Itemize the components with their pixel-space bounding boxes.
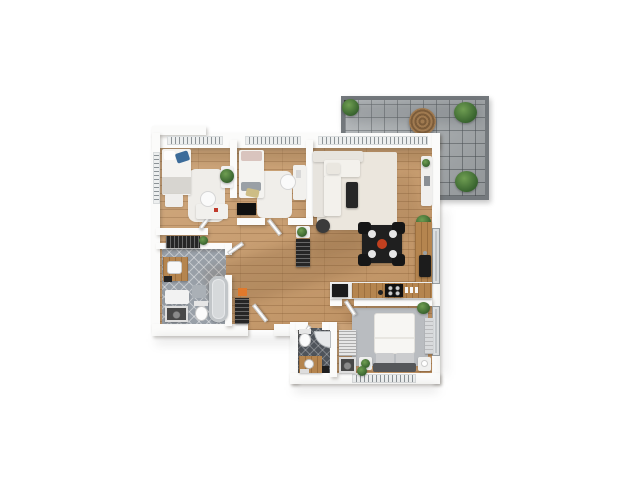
hall-shelf bbox=[235, 298, 249, 324]
wall-kitchen-bedroom-a bbox=[330, 298, 342, 306]
window-top-living bbox=[318, 136, 428, 145]
kitchen-sink bbox=[419, 255, 431, 277]
window-top-office2 bbox=[245, 136, 301, 145]
dining-plate-3 bbox=[368, 250, 376, 258]
sofa-cushion bbox=[327, 163, 340, 174]
kitchen-kettle bbox=[378, 290, 383, 295]
small-bath-item bbox=[322, 366, 329, 373]
bathtub bbox=[209, 276, 228, 322]
bed-duvet bbox=[374, 313, 415, 354]
sideboard-plant bbox=[422, 159, 430, 167]
bedroom-plant-2 bbox=[357, 366, 367, 376]
nightstand-vase bbox=[421, 360, 428, 367]
office2-desk-item bbox=[296, 170, 301, 178]
dining-plate-4 bbox=[389, 250, 397, 258]
window-top-office1 bbox=[167, 136, 223, 145]
office1-plant bbox=[220, 169, 234, 183]
kitchen-oven bbox=[332, 284, 348, 297]
kitchen-cooktop bbox=[385, 284, 403, 297]
hall-art bbox=[238, 288, 247, 296]
floor-lamp bbox=[316, 219, 330, 233]
window-right-bedroom bbox=[432, 306, 440, 356]
sofa-seat-left bbox=[324, 176, 341, 216]
floor-plan-canvas bbox=[0, 0, 640, 480]
bed-headboard bbox=[373, 363, 416, 372]
bathroom-sink bbox=[167, 261, 182, 274]
hall-sideboard-plant bbox=[199, 236, 208, 245]
office1-desk-item bbox=[214, 208, 218, 212]
small-bath-towel bbox=[300, 369, 309, 373]
terrace-basket bbox=[409, 108, 436, 135]
office1-desk bbox=[196, 204, 228, 219]
wall-office2-bottom-b bbox=[288, 218, 313, 225]
bathroom-vanity-item bbox=[164, 276, 172, 282]
washing-machine bbox=[165, 306, 188, 322]
terrace-plant-3 bbox=[455, 171, 478, 192]
divider-shelf-plant bbox=[297, 227, 307, 237]
office1-blanket bbox=[162, 177, 191, 194]
office1-pillow-white bbox=[164, 151, 175, 160]
wall-bottom-left-a bbox=[152, 324, 248, 336]
office2-pillow bbox=[241, 151, 262, 161]
dining-plate-1 bbox=[368, 230, 376, 238]
kitchen-faucet bbox=[423, 251, 427, 255]
bedroom-louver-cabinet bbox=[339, 330, 356, 356]
bedroom-plant-1 bbox=[417, 302, 430, 314]
small-bath-toilet bbox=[299, 333, 311, 347]
wall-small-bath-right bbox=[330, 322, 337, 377]
wall-office2-living bbox=[306, 140, 313, 218]
terrace-plant-2 bbox=[454, 102, 477, 123]
building-shade-right bbox=[441, 210, 447, 375]
coffee-table bbox=[346, 182, 358, 208]
office1-chair bbox=[200, 191, 216, 207]
wall-office2-bottom-a bbox=[237, 218, 265, 225]
dining-plate-2 bbox=[389, 230, 397, 238]
office2-tv bbox=[237, 203, 256, 215]
window-right-kitchen bbox=[432, 228, 440, 284]
small-bath-basin bbox=[304, 359, 314, 369]
kitchen-small-items bbox=[405, 287, 419, 293]
sideboard-item bbox=[424, 176, 430, 186]
hall-sideboard bbox=[166, 236, 200, 248]
bathroom-toilet bbox=[195, 306, 208, 321]
bedroom-washer bbox=[339, 357, 356, 373]
building-shade-bottom-left bbox=[156, 337, 296, 344]
dining-bowl bbox=[377, 239, 387, 249]
bathroom-mat bbox=[192, 285, 206, 298]
bathroom-cabinet bbox=[165, 290, 189, 304]
office2-chair bbox=[280, 174, 296, 190]
window-left-office1 bbox=[153, 152, 160, 204]
terrace-plant-1 bbox=[342, 99, 359, 116]
divider-shelf-dark bbox=[296, 239, 310, 267]
building-shade-bottom-lower bbox=[294, 385, 438, 392]
office1-dresser bbox=[165, 194, 183, 207]
bed-fold bbox=[375, 337, 414, 339]
bedroom-radiator bbox=[425, 318, 433, 354]
wall-top-step bbox=[152, 126, 206, 135]
